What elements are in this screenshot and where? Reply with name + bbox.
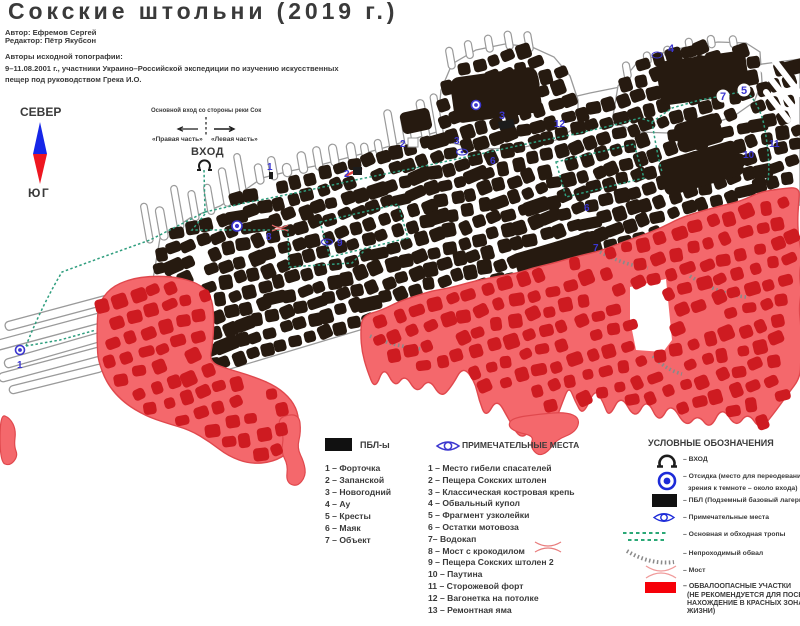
svg-text:11: 11: [769, 139, 780, 150]
svg-text:2: 2: [344, 169, 350, 180]
svg-text:7: 7: [720, 91, 726, 103]
svg-text:6: 6: [490, 156, 496, 167]
svg-text:5: 5: [741, 85, 747, 97]
svg-text:3: 3: [499, 110, 505, 122]
svg-text:3: 3: [454, 136, 460, 147]
svg-text:1: 1: [267, 162, 273, 173]
svg-text:1: 1: [17, 360, 23, 371]
svg-text:12: 12: [554, 119, 566, 130]
svg-text:10: 10: [743, 150, 755, 161]
svg-text:4: 4: [668, 43, 675, 55]
svg-text:9: 9: [337, 238, 343, 249]
svg-text:6: 6: [584, 203, 590, 214]
svg-text:7: 7: [593, 243, 599, 254]
svg-text:2: 2: [400, 139, 406, 150]
svg-text:8: 8: [266, 232, 272, 243]
